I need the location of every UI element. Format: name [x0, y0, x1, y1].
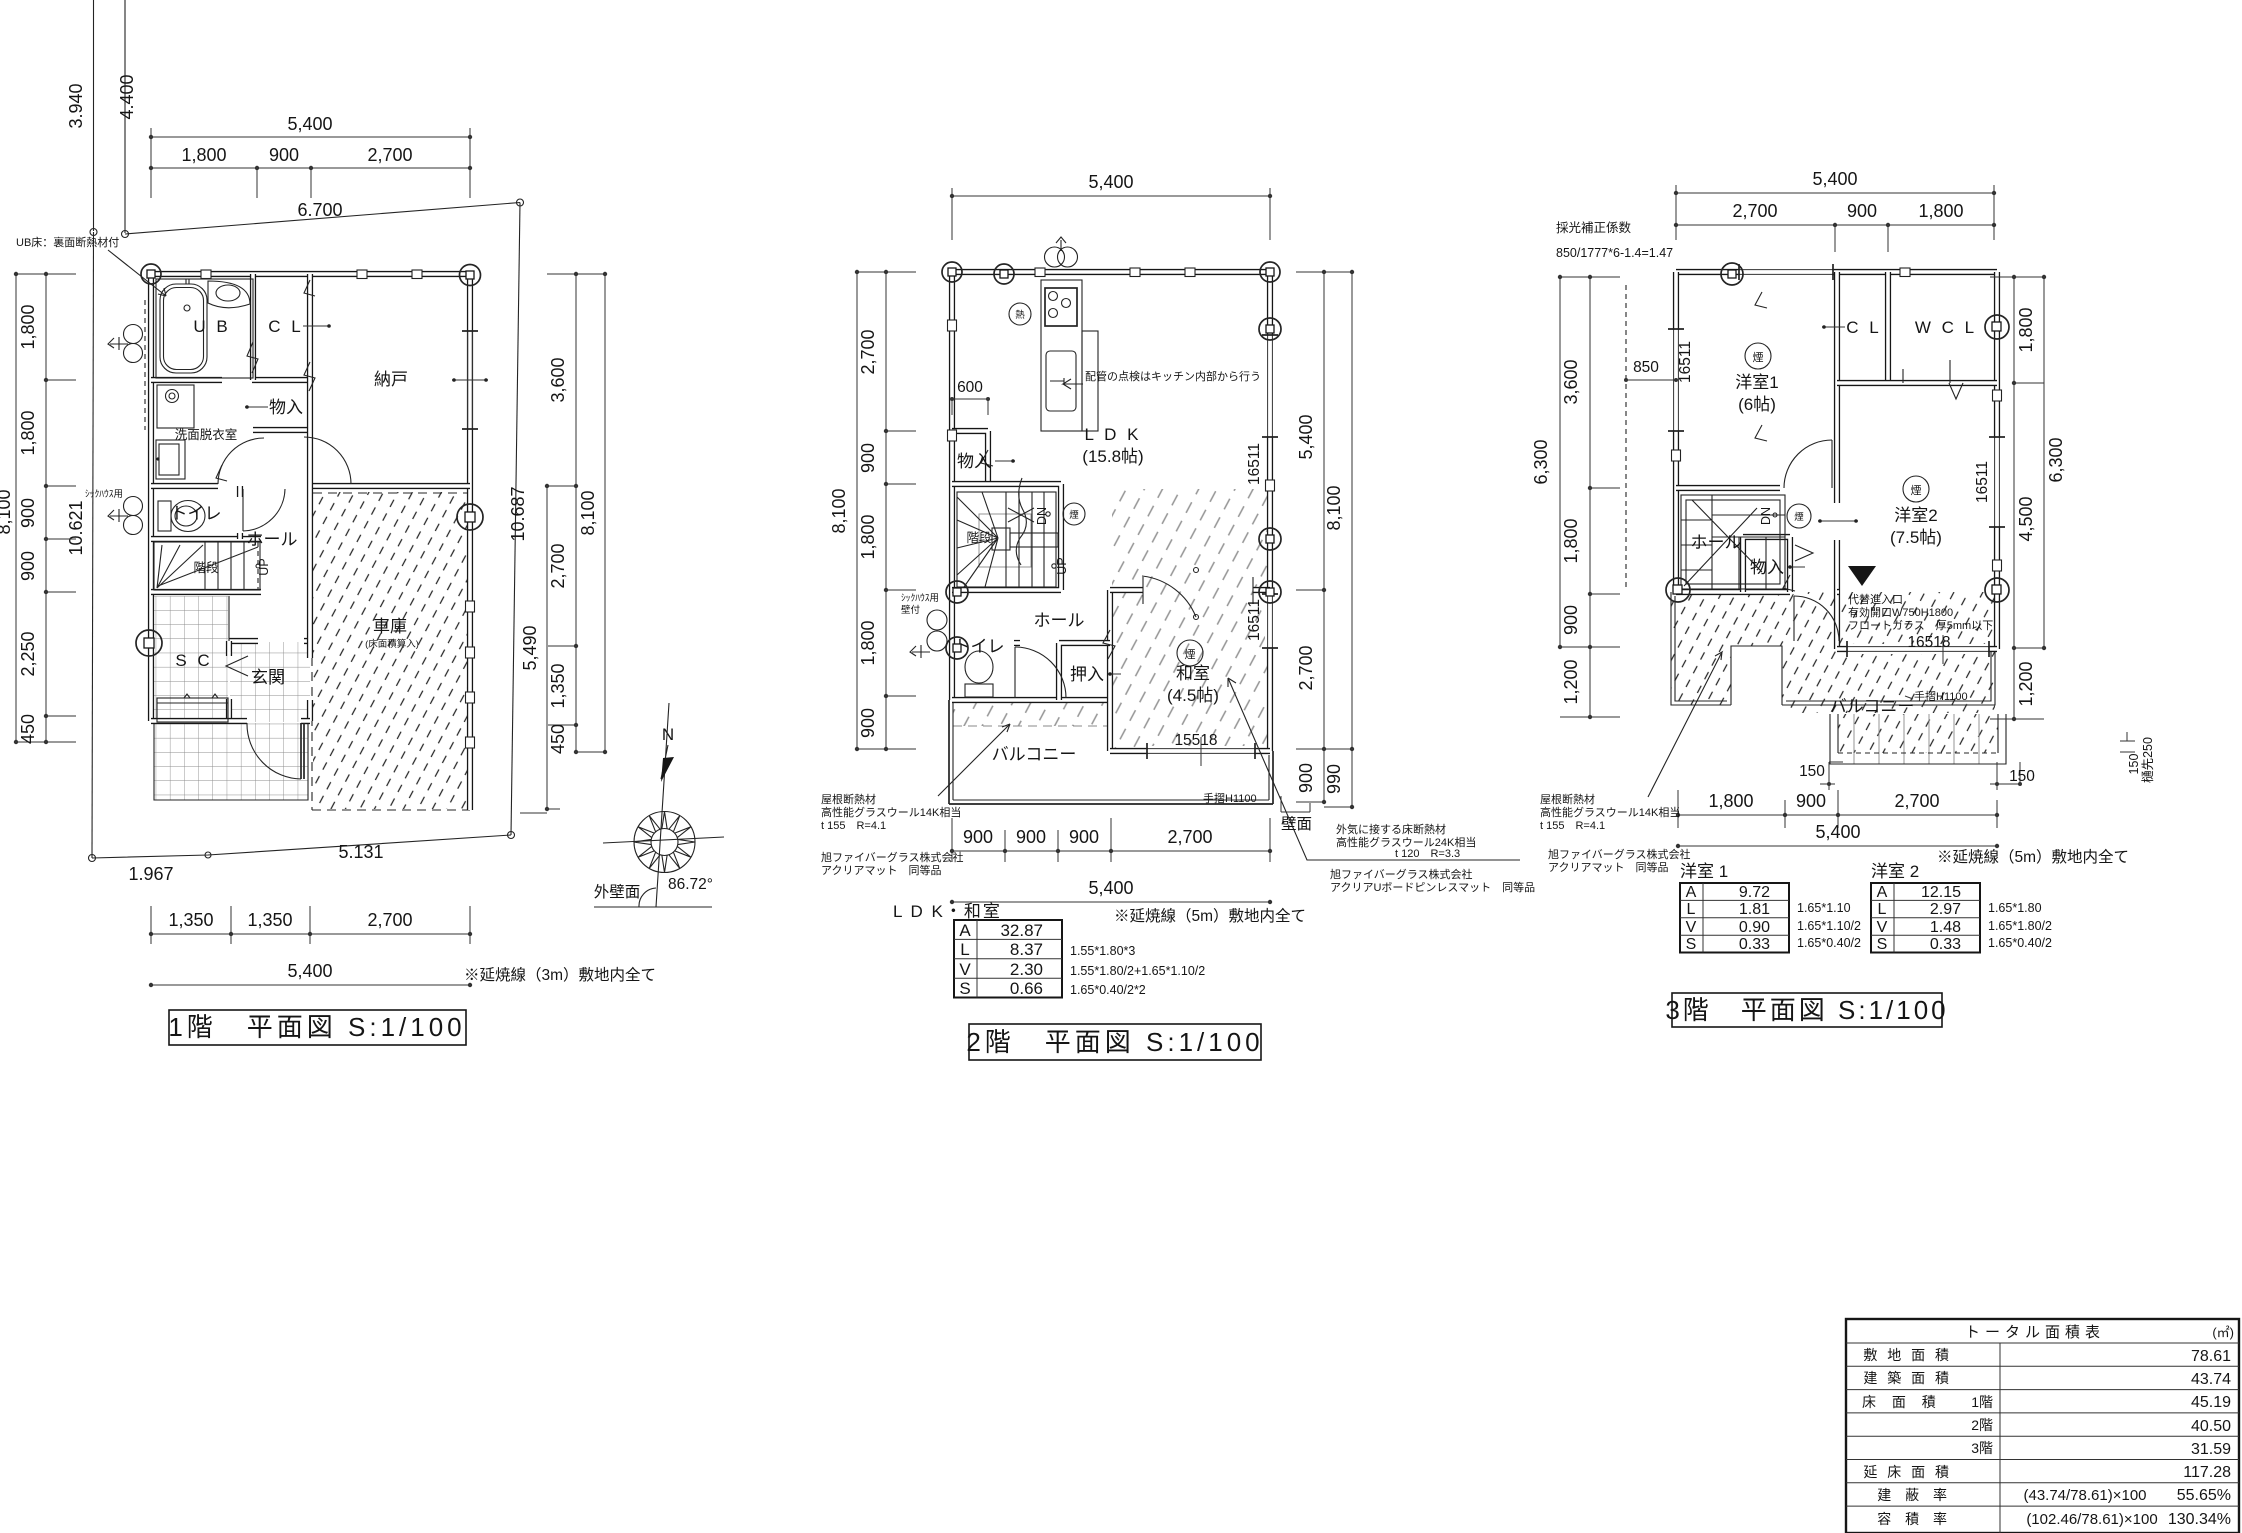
- svg-text:450: 450: [18, 714, 38, 744]
- svg-text:洗面脱衣室: 洗面脱衣室: [175, 427, 238, 442]
- svg-text:C L: C L: [268, 317, 303, 336]
- svg-text:16518: 16518: [1907, 634, 1950, 651]
- svg-text:1.48: 1.48: [1930, 919, 1961, 936]
- svg-text:高性能グラスウール24K相当: 高性能グラスウール24K相当: [1336, 835, 1476, 849]
- svg-text:(102.46/78.61)×100: (102.46/78.61)×100: [2026, 1511, 2157, 1528]
- svg-text:外気に接する床断熱材: 外気に接する床断熱材: [1336, 822, 1446, 836]
- svg-text:煙: 煙: [1794, 512, 1804, 523]
- svg-text:和室: 和室: [1176, 664, 1210, 683]
- svg-text:1,350: 1,350: [548, 663, 568, 708]
- svg-text:3,600: 3,600: [1561, 359, 1581, 404]
- svg-text:手摺H1100: 手摺H1100: [1914, 689, 1968, 703]
- svg-text:1,800: 1,800: [1708, 791, 1753, 811]
- svg-text:6,300: 6,300: [1531, 439, 1551, 484]
- svg-text:UP: UP: [257, 558, 271, 575]
- svg-text:t 155 R=4.1: t 155 R=4.1: [821, 820, 886, 832]
- svg-text:階段: 階段: [193, 560, 218, 575]
- svg-text:t 155 R=4.1: t 155 R=4.1: [1540, 820, 1605, 832]
- svg-text:A: A: [1686, 884, 1697, 901]
- svg-text:S C: S C: [175, 651, 212, 670]
- svg-text:3,600: 3,600: [548, 357, 568, 402]
- svg-text:8,100: 8,100: [578, 490, 598, 535]
- svg-text:900: 900: [963, 827, 993, 847]
- svg-text:1,800: 1,800: [18, 410, 38, 455]
- svg-text:2,700: 2,700: [367, 145, 412, 165]
- svg-text:旭ファイバーグラス株式会社: 旭ファイバーグラス株式会社: [1330, 867, 1473, 881]
- svg-text:A: A: [1877, 884, 1888, 901]
- svg-text:3階 平面図 S:1/100: 3階 平面図 S:1/100: [1665, 995, 1948, 1025]
- svg-text:2.30: 2.30: [1010, 960, 1043, 979]
- svg-text:5,400: 5,400: [287, 114, 332, 134]
- svg-text:納戸: 納戸: [374, 370, 408, 389]
- svg-text:1.967: 1.967: [128, 864, 173, 884]
- svg-text:5.131: 5.131: [338, 842, 383, 862]
- svg-text:1,800: 1,800: [858, 620, 878, 665]
- svg-text:900: 900: [1847, 201, 1877, 221]
- svg-text:5,400: 5,400: [1296, 414, 1316, 459]
- svg-text:6.700: 6.700: [297, 200, 342, 220]
- svg-text:1.65*1.10/2: 1.65*1.10/2: [1797, 919, 1861, 933]
- svg-text:1階: 1階: [1971, 1394, 1993, 1410]
- svg-text:8,100: 8,100: [829, 488, 849, 533]
- svg-text:採光補正係数: 採光補正係数: [1556, 220, 1632, 235]
- svg-text:外壁面: 外壁面: [594, 883, 641, 901]
- svg-text:900: 900: [1069, 827, 1099, 847]
- svg-text:L: L: [960, 940, 969, 959]
- svg-text:L: L: [1878, 901, 1887, 918]
- svg-text:900: 900: [1796, 791, 1826, 811]
- svg-text:1,350: 1,350: [168, 910, 213, 930]
- svg-text:2階 平面図 S:1/100: 2階 平面図 S:1/100: [966, 1027, 1263, 1057]
- svg-text:45.19: 45.19: [2191, 1394, 2231, 1411]
- svg-text:150: 150: [2127, 754, 2141, 775]
- svg-text:S: S: [1686, 936, 1697, 953]
- svg-text:55.65%: 55.65%: [2177, 1487, 2231, 1504]
- svg-text:0.66: 0.66: [1010, 979, 1043, 998]
- svg-text:1.81: 1.81: [1739, 901, 1770, 918]
- svg-text:トイレ: トイレ: [171, 504, 222, 523]
- svg-text:ホール: ホール: [1691, 533, 1742, 552]
- svg-text:900: 900: [269, 145, 299, 165]
- svg-text:86.72°: 86.72°: [668, 876, 713, 893]
- svg-text:L D K: L D K: [1085, 425, 1142, 444]
- svg-text:900: 900: [1296, 763, 1316, 793]
- svg-text:5,400: 5,400: [1812, 169, 1857, 189]
- svg-text:(4.5帖): (4.5帖): [1167, 686, 1219, 705]
- svg-text:900: 900: [18, 498, 38, 528]
- svg-text:5,400: 5,400: [1815, 822, 1860, 842]
- svg-text:4,500: 4,500: [2016, 496, 2036, 541]
- svg-text:150: 150: [1799, 763, 1825, 780]
- svg-text:2,700: 2,700: [1894, 791, 1939, 811]
- svg-text:L: L: [1687, 901, 1696, 918]
- svg-text:U B: U B: [193, 317, 230, 336]
- svg-text:1,800: 1,800: [181, 145, 226, 165]
- svg-text:屋根断熱材: 屋根断熱材: [821, 792, 876, 806]
- svg-text:S: S: [1877, 936, 1888, 953]
- svg-text:アクリアマット 同等品: アクリアマット 同等品: [1548, 860, 1668, 874]
- svg-text:※延焼線（3m）敷地内全て: ※延焼線（3m）敷地内全て: [464, 965, 656, 984]
- svg-text:43.74: 43.74: [2191, 1371, 2231, 1388]
- svg-text:ｼｯｸﾊｳｽ用: ｼｯｸﾊｳｽ用: [901, 593, 939, 604]
- svg-text:8,100: 8,100: [1324, 485, 1344, 530]
- svg-text:10.687: 10.687: [508, 486, 528, 541]
- svg-text:16511: 16511: [1974, 461, 1991, 503]
- svg-text:押入: 押入: [1070, 665, 1104, 684]
- svg-text:990: 990: [1324, 764, 1344, 794]
- svg-text:1,800: 1,800: [858, 514, 878, 559]
- svg-text:1,200: 1,200: [2016, 661, 2036, 706]
- svg-text:0.33: 0.33: [1930, 936, 1961, 953]
- svg-text:樋先250: 樋先250: [2140, 737, 2155, 783]
- svg-text:2,700: 2,700: [1167, 827, 1212, 847]
- svg-text:1,200: 1,200: [1561, 659, 1581, 704]
- svg-text:煙: 煙: [1185, 648, 1196, 661]
- svg-text:※延焼線（5m）敷地内全て: ※延焼線（5m）敷地内全て: [1114, 906, 1306, 925]
- svg-text:1.55*1.80/2+1.65*1.10/2: 1.55*1.80/2+1.65*1.10/2: [1070, 964, 1205, 978]
- svg-text:C L: C L: [1846, 318, 1881, 337]
- svg-text:5,400: 5,400: [1088, 172, 1133, 192]
- svg-text:旭ファイバーグラス株式会社: 旭ファイバーグラス株式会社: [1548, 847, 1691, 861]
- svg-text:1.65*0.40/2: 1.65*0.40/2: [1988, 936, 2052, 950]
- svg-text:(床面積算入): (床面積算入): [365, 638, 419, 650]
- svg-text:(6帖): (6帖): [1738, 395, 1776, 414]
- svg-text:W C L: W C L: [1915, 318, 1977, 337]
- svg-text:5,490: 5,490: [520, 625, 540, 670]
- svg-text:建 蔽 率: 建 蔽 率: [1877, 1487, 1952, 1503]
- svg-text:煙: 煙: [1753, 351, 1764, 364]
- svg-text:850: 850: [1633, 359, 1659, 376]
- svg-text:DN: DN: [1759, 507, 1773, 525]
- svg-text:1.65*1.80/2: 1.65*1.80/2: [1988, 919, 2052, 933]
- svg-text:16511: 16511: [1246, 443, 1263, 485]
- svg-text:フロートガラス 厚5mm以下: フロートガラス 厚5mm以下: [1848, 619, 1993, 632]
- svg-text:(7.5帖): (7.5帖): [1890, 528, 1942, 547]
- svg-text:ホール: ホール: [247, 530, 298, 549]
- svg-text:31.59: 31.59: [2191, 1441, 2231, 1458]
- svg-text:32.87: 32.87: [1000, 921, 1043, 940]
- svg-text:洋室 2: 洋室 2: [1871, 862, 1919, 881]
- svg-text:2,700: 2,700: [367, 910, 412, 930]
- svg-text:UB床：裏面断熱材付: UB床：裏面断熱材付: [16, 235, 119, 249]
- svg-text:900: 900: [858, 443, 878, 473]
- svg-text:容 積 率: 容 積 率: [1877, 1511, 1952, 1527]
- svg-text:ｼｯｸﾊｳｽ用: ｼｯｸﾊｳｽ用: [85, 489, 123, 500]
- svg-text:A: A: [959, 921, 971, 940]
- svg-text:1,350: 1,350: [247, 910, 292, 930]
- svg-text:t 120 R=3.3: t 120 R=3.3: [1395, 848, 1460, 860]
- svg-text:1,800: 1,800: [18, 304, 38, 349]
- svg-text:1.65*1.80: 1.65*1.80: [1988, 901, 2042, 915]
- svg-text:アクリアUボードピンレスマット 同等品: アクリアUボードピンレスマット 同等品: [1330, 880, 1535, 894]
- svg-text:延 床 面 積: 延 床 面 積: [1863, 1464, 1952, 1480]
- svg-text:3階: 3階: [1971, 1440, 1993, 1456]
- svg-text:5,400: 5,400: [287, 961, 332, 981]
- svg-text:壁付: 壁付: [901, 604, 921, 616]
- svg-text:900: 900: [1561, 605, 1581, 635]
- svg-text:壁面: 壁面: [1281, 815, 1312, 833]
- svg-text:150: 150: [2009, 768, 2035, 785]
- svg-text:5,400: 5,400: [1088, 878, 1133, 898]
- svg-text:1階 平面図 S:1/100: 1階 平面図 S:1/100: [168, 1012, 465, 1042]
- svg-text:床 面 積: 床 面 積: [1862, 1394, 1942, 1410]
- svg-text:1,800: 1,800: [2016, 307, 2036, 352]
- svg-text:10.621: 10.621: [66, 500, 86, 555]
- svg-text:2,700: 2,700: [858, 329, 878, 374]
- svg-text:2,700: 2,700: [1296, 645, 1316, 690]
- svg-text:117.28: 117.28: [2183, 1464, 2231, 1481]
- svg-text:DN: DN: [1035, 507, 1049, 525]
- svg-text:1.65*0.40/2: 1.65*0.40/2: [1797, 936, 1861, 950]
- svg-text:2階: 2階: [1971, 1417, 1993, 1433]
- svg-text:洋室1: 洋室1: [1735, 373, 1778, 392]
- svg-text:850/1777*6-1.4=1.47: 850/1777*6-1.4=1.47: [1556, 246, 1673, 260]
- svg-text:物入: 物入: [1750, 558, 1784, 577]
- svg-text:玄関: 玄関: [251, 668, 285, 687]
- svg-text:熱: 熱: [1015, 309, 1025, 321]
- svg-text:1.55*1.80*3: 1.55*1.80*3: [1070, 944, 1135, 958]
- svg-text:130.34%: 130.34%: [2168, 1511, 2231, 1528]
- svg-text:2,700: 2,700: [1732, 201, 1777, 221]
- svg-text:洋室 1: 洋室 1: [1680, 862, 1728, 881]
- svg-text:900: 900: [1016, 827, 1046, 847]
- svg-text:1.65*0.40/2*2: 1.65*0.40/2*2: [1070, 983, 1146, 997]
- svg-text:600: 600: [957, 379, 983, 396]
- svg-text:V: V: [1877, 919, 1888, 936]
- svg-text:V: V: [959, 960, 971, 979]
- svg-text:建 築 面 積: 建 築 面 積: [1863, 1370, 1952, 1386]
- svg-text:12.15: 12.15: [1921, 884, 1961, 901]
- svg-text:900: 900: [858, 708, 878, 738]
- svg-text:78.61: 78.61: [2191, 1348, 2231, 1365]
- svg-text:L D K・和室: L D K・和室: [893, 902, 1002, 921]
- svg-text:屋根断熱材: 屋根断熱材: [1540, 792, 1595, 806]
- svg-text:S: S: [959, 979, 970, 998]
- svg-text:8.37: 8.37: [1010, 940, 1043, 959]
- svg-text:4.400: 4.400: [117, 74, 137, 119]
- svg-text:450: 450: [548, 724, 568, 754]
- svg-text:N: N: [662, 725, 674, 744]
- svg-text:900: 900: [18, 551, 38, 581]
- svg-text:2,250: 2,250: [18, 631, 38, 676]
- svg-text:1.65*1.10: 1.65*1.10: [1797, 901, 1851, 915]
- svg-text:0.90: 0.90: [1739, 919, 1770, 936]
- svg-text:旭ファイバーグラス株式会社: 旭ファイバーグラス株式会社: [821, 850, 964, 864]
- svg-text:代替進入口: 代替進入口: [1848, 592, 1903, 606]
- svg-text:トータル面積表: トータル面積表: [1965, 1324, 2105, 1341]
- svg-text:敷 地 面 積: 敷 地 面 積: [1863, 1347, 1952, 1363]
- svg-text:UP: UP: [1055, 557, 1069, 574]
- svg-text:煙: 煙: [1911, 484, 1922, 497]
- svg-text:2,700: 2,700: [548, 543, 568, 588]
- svg-text:8,100: 8,100: [0, 489, 14, 534]
- svg-text:ホール: ホール: [1034, 611, 1085, 630]
- svg-text:16511: 16511: [1246, 599, 1263, 641]
- svg-text:1,800: 1,800: [1561, 518, 1581, 563]
- svg-text:車庫: 車庫: [373, 617, 407, 636]
- svg-text:有効開口W750H1800: 有効開口W750H1800: [1848, 605, 1953, 619]
- svg-text:アクリアマット 同等品: アクリアマット 同等品: [821, 863, 941, 877]
- svg-text:階段: 階段: [966, 530, 991, 545]
- svg-text:手摺H1100: 手摺H1100: [1203, 791, 1257, 805]
- svg-text:2.97: 2.97: [1930, 901, 1961, 918]
- svg-text:1,800: 1,800: [1918, 201, 1963, 221]
- svg-text:3.940: 3.940: [66, 83, 86, 128]
- svg-text:9.72: 9.72: [1739, 884, 1770, 901]
- svg-text:(43.74/78.61)×100: (43.74/78.61)×100: [2023, 1487, 2146, 1504]
- svg-text:バルコニー: バルコニー: [992, 745, 1077, 764]
- svg-text:15518: 15518: [1174, 732, 1217, 749]
- svg-text:0.33: 0.33: [1739, 936, 1770, 953]
- svg-text:洋室2: 洋室2: [1894, 506, 1937, 525]
- svg-text:(15.8帖): (15.8帖): [1082, 447, 1143, 466]
- svg-text:高性能グラスウール14K相当: 高性能グラスウール14K相当: [821, 805, 961, 819]
- svg-text:煙: 煙: [1069, 510, 1079, 521]
- svg-text:物入: 物入: [957, 452, 991, 471]
- svg-text:(㎡): (㎡): [2212, 1325, 2234, 1340]
- svg-text:※延焼線（5m）敷地内全て: ※延焼線（5m）敷地内全て: [1937, 847, 2129, 866]
- svg-text:40.50: 40.50: [2191, 1418, 2231, 1435]
- svg-text:配管の点検はキッチン内部から行う: 配管の点検はキッチン内部から行う: [1085, 369, 1261, 383]
- svg-text:6,300: 6,300: [2046, 437, 2066, 482]
- svg-text:16511: 16511: [1677, 341, 1694, 383]
- svg-text:高性能グラスウール14K相当: 高性能グラスウール14K相当: [1540, 805, 1680, 819]
- svg-text:バルコニー: バルコニー: [1830, 697, 1915, 716]
- svg-text:V: V: [1686, 919, 1697, 936]
- svg-text:物入: 物入: [269, 398, 303, 417]
